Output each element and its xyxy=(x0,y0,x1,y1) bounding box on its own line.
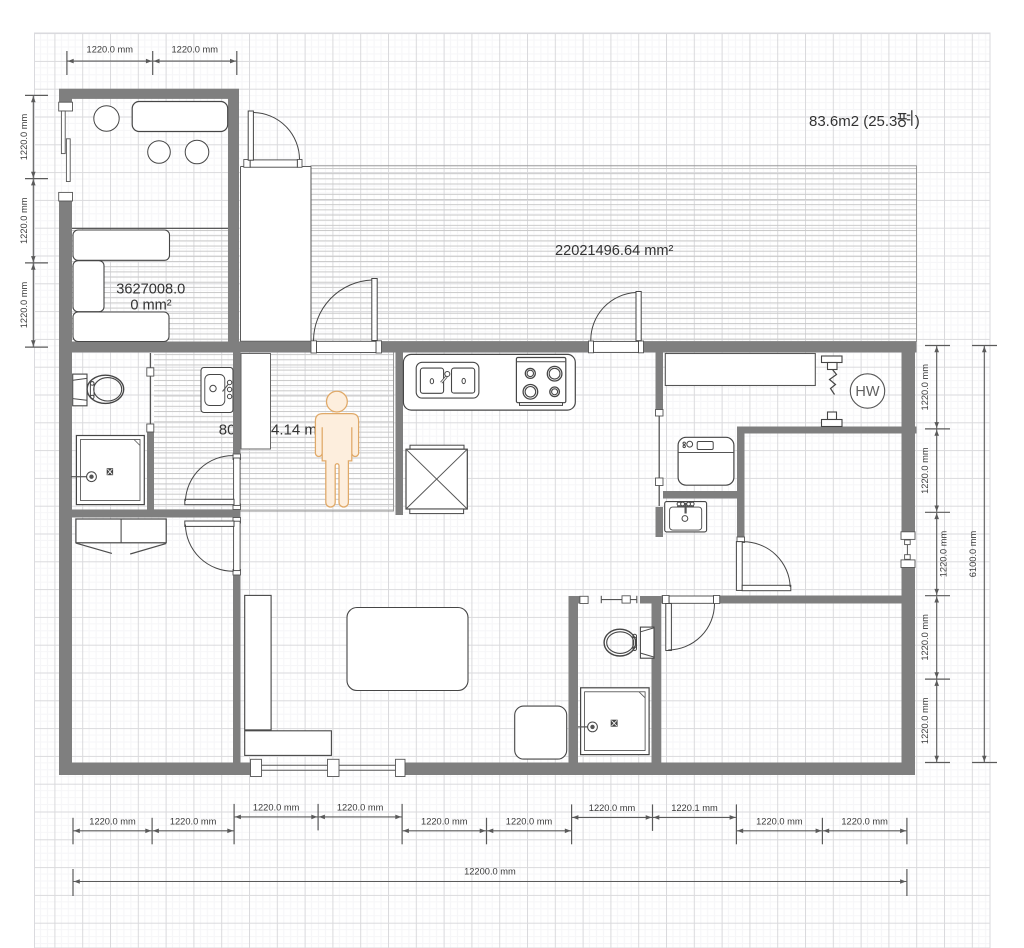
svg-text:1220.0 mm: 1220.0 mm xyxy=(19,197,29,244)
svg-text:1220.0 mm: 1220.0 mm xyxy=(421,816,468,826)
svg-text:1220.0 mm: 1220.0 mm xyxy=(920,697,930,744)
svg-text:12200.0 mm: 12200.0 mm xyxy=(464,867,516,877)
svg-text:83.6m2 (25.3: 83.6m2 (25.3 xyxy=(809,113,897,130)
svg-text:1220.0 mm: 1220.0 mm xyxy=(920,614,930,661)
svg-text:): ) xyxy=(915,113,920,130)
svg-text:1220.0 mm: 1220.0 mm xyxy=(171,45,218,55)
svg-text:1220.0 mm: 1220.0 mm xyxy=(19,113,29,160)
svg-text:1220.0 mm: 1220.0 mm xyxy=(939,530,949,577)
svg-text:6100.0 mm: 6100.0 mm xyxy=(968,530,978,577)
svg-text:1220.0 mm: 1220.0 mm xyxy=(589,803,636,813)
svg-text:1220.1 mm: 1220.1 mm xyxy=(671,803,718,813)
svg-text:22021496.64 mm²: 22021496.64 mm² xyxy=(555,243,674,259)
svg-text:1220.0 mm: 1220.0 mm xyxy=(756,816,803,826)
svg-text:1220.0 mm: 1220.0 mm xyxy=(506,816,553,826)
svg-text:1220.0 mm: 1220.0 mm xyxy=(920,364,930,411)
svg-text:1220.0 mm: 1220.0 mm xyxy=(87,45,134,55)
svg-text:1220.0 mm: 1220.0 mm xyxy=(253,802,300,812)
svg-text:1220.0 mm: 1220.0 mm xyxy=(841,816,888,826)
svg-text:1220.0 mm: 1220.0 mm xyxy=(19,281,29,328)
svg-text:1220.0 mm: 1220.0 mm xyxy=(920,447,930,494)
svg-text:80: 80 xyxy=(219,422,236,439)
svg-text:HW: HW xyxy=(855,384,879,400)
svg-text:0 mm²: 0 mm² xyxy=(130,297,171,313)
svg-text:1220.0 mm: 1220.0 mm xyxy=(170,816,217,826)
svg-text:3627008.0: 3627008.0 xyxy=(116,281,185,297)
svg-text:1220.0 mm: 1220.0 mm xyxy=(89,816,136,826)
svg-text:1220.0 mm: 1220.0 mm xyxy=(337,802,384,812)
